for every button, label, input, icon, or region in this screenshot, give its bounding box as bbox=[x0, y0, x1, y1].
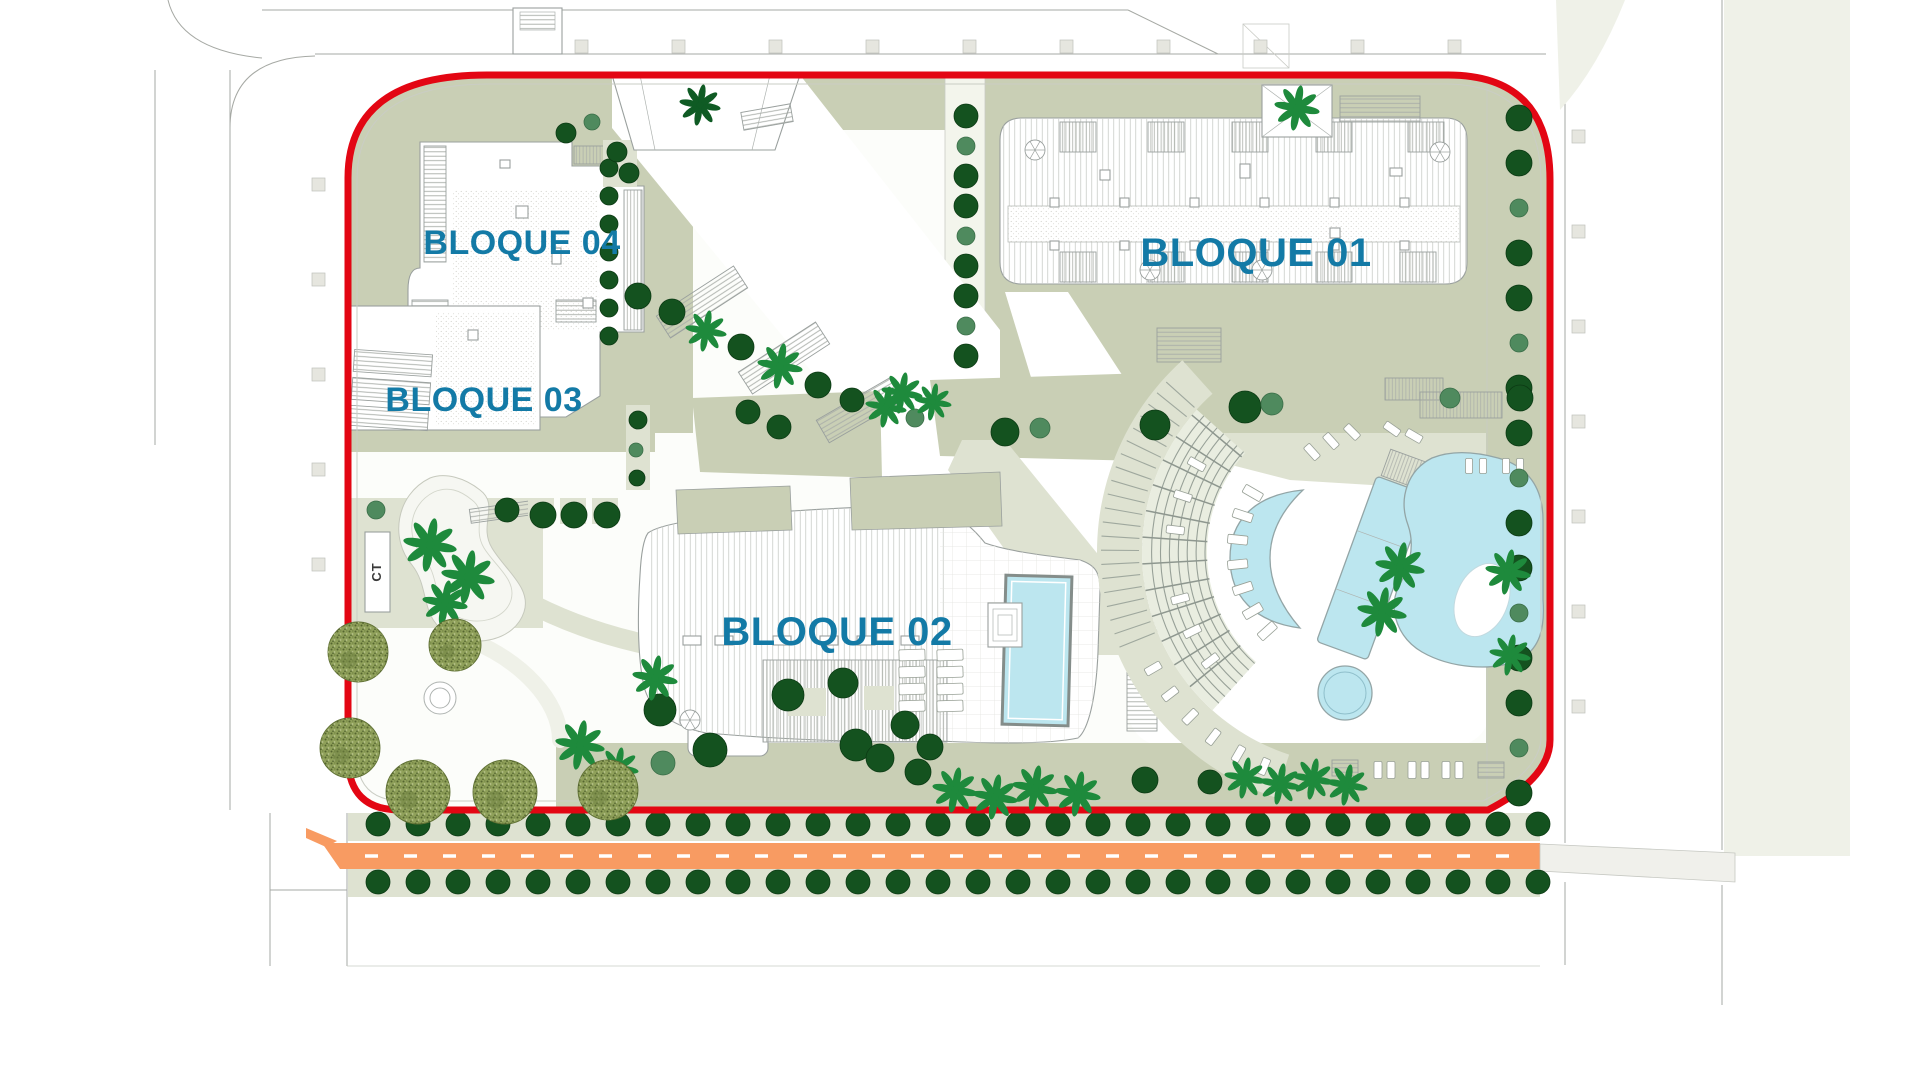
right-verge bbox=[1724, 0, 1850, 856]
bloque-02-label: BLOQUE 02 bbox=[721, 610, 952, 654]
south-road bbox=[306, 812, 1735, 897]
pergola bbox=[1420, 392, 1502, 418]
bloque-02-rooftop-pool bbox=[1002, 575, 1072, 726]
bloque-03-label: BLOQUE 03 bbox=[385, 381, 582, 419]
top-driveway bbox=[513, 8, 562, 54]
site-plan-page: CT bbox=[0, 0, 1920, 1080]
b02-spa-square bbox=[988, 603, 1022, 647]
round-spa-pool bbox=[1318, 666, 1372, 720]
ct-label: CT bbox=[369, 562, 384, 581]
bloque-04-label: BLOQUE 04 bbox=[423, 224, 620, 262]
road-surface bbox=[322, 843, 1540, 869]
promenade-tree-row bbox=[954, 104, 978, 368]
fountain bbox=[424, 682, 456, 714]
bloque-01-label: BLOQUE 01 bbox=[1140, 231, 1371, 275]
site-plan-drawing: CT bbox=[0, 0, 1920, 1080]
road-continuation bbox=[1540, 844, 1735, 882]
